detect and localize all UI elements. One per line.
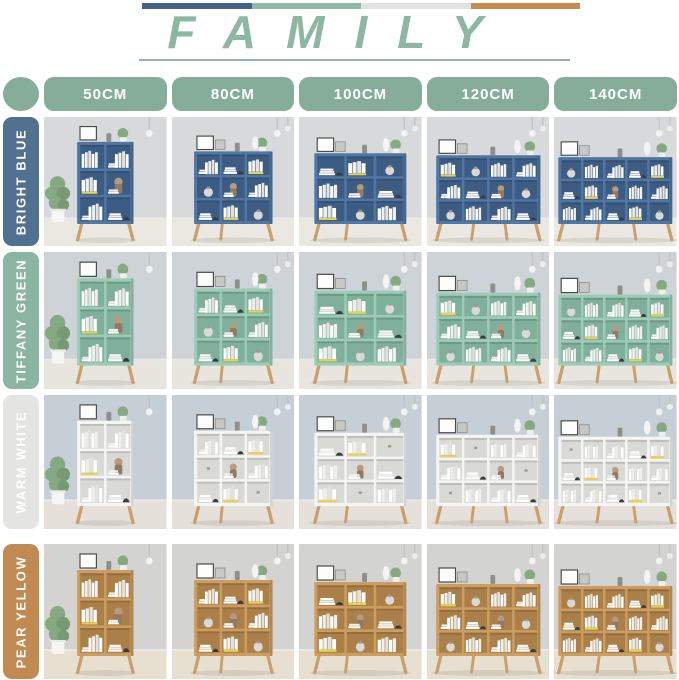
photo-strip-warm-white — [44, 395, 677, 529]
product-photo-pear-yellow-50cm — [44, 544, 167, 679]
size-pill-140cm: 140CM — [554, 77, 677, 111]
photo-strip-tiffany-green — [44, 252, 677, 389]
product-photo-pear-yellow-100cm — [299, 544, 422, 679]
bookshelf-scene — [427, 252, 550, 389]
product-photo-warm-white-80cm — [172, 395, 295, 529]
bookshelf-scene — [554, 117, 677, 246]
bookshelf-scene — [427, 395, 550, 529]
product-photo-pear-yellow-80cm — [172, 544, 295, 679]
bookshelf-scene — [172, 395, 295, 529]
photo-strip-bright-blue — [44, 117, 677, 246]
bookshelf-scene — [44, 395, 167, 529]
product-photo-tiffany-green-80cm — [172, 252, 295, 389]
brand-title: FAMILY — [118, 9, 562, 56]
bookshelf-scene — [172, 117, 295, 246]
product-photo-tiffany-green-50cm — [44, 252, 167, 389]
bookshelf-scene — [554, 544, 677, 679]
color-band-warm-white: WARM WHITE — [3, 395, 677, 529]
bookshelf-scene — [299, 252, 422, 389]
size-pill-120cm: 120CM — [427, 77, 550, 111]
product-photo-pear-yellow-140cm — [554, 544, 677, 679]
bookshelf-scene — [44, 544, 167, 679]
bookshelf-scene — [554, 252, 677, 389]
product-photo-tiffany-green-100cm — [299, 252, 422, 389]
bookshelf-scene — [44, 252, 167, 389]
bookshelf-scene — [299, 544, 422, 679]
color-label-text: PEAR YELLOW — [14, 555, 29, 668]
size-pill-100cm: 100CM — [299, 77, 422, 111]
color-label-bright-blue: BRIGHT BLUE — [3, 117, 39, 246]
bookshelf-scene — [427, 117, 550, 246]
product-photo-pear-yellow-120cm — [427, 544, 550, 679]
color-band-bright-blue: BRIGHT BLUE — [3, 117, 677, 246]
color-label-text: TIFFANY GREEN — [14, 258, 29, 383]
color-label-warm-white: WARM WHITE — [3, 395, 39, 529]
bookshelf-scene — [299, 395, 422, 529]
brand-underline — [139, 59, 570, 61]
size-pill-50cm: 50CM — [44, 77, 167, 111]
product-photo-warm-white-50cm — [44, 395, 167, 529]
color-label-tiffany-green: TIFFANY GREEN — [3, 252, 39, 389]
size-pill-80cm: 80CM — [172, 77, 295, 111]
color-label-text: WARM WHITE — [14, 411, 29, 514]
product-photo-tiffany-green-120cm — [427, 252, 550, 389]
product-photo-bright-blue-120cm — [427, 117, 550, 246]
color-label-pear-yellow: PEAR YELLOW — [3, 544, 39, 679]
product-photo-bright-blue-140cm — [554, 117, 677, 246]
product-photo-tiffany-green-140cm — [554, 252, 677, 389]
product-photo-bright-blue-80cm — [172, 117, 295, 246]
color-band-pear-yellow: PEAR YELLOW — [3, 544, 677, 679]
color-band-tiffany-green: TIFFANY GREEN — [3, 252, 677, 389]
size-header-row: 50CM 80CM 100CM 120CM 140CM — [3, 77, 677, 111]
bookshelf-scene — [44, 117, 167, 246]
color-label-text: BRIGHT BLUE — [14, 128, 29, 234]
bookshelf-scene — [554, 395, 677, 529]
product-photo-bright-blue-50cm — [44, 117, 167, 246]
photo-strip-pear-yellow — [44, 544, 677, 679]
product-photo-bright-blue-100cm — [299, 117, 422, 246]
product-photo-warm-white-140cm — [554, 395, 677, 529]
legend-dot — [3, 77, 39, 111]
bookshelf-scene — [427, 544, 550, 679]
bookshelf-scene — [172, 252, 295, 389]
product-family-sheet: FAMILY 50CM 80CM 100CM 120CM 140CM BRIGH… — [0, 0, 679, 680]
product-photo-warm-white-100cm — [299, 395, 422, 529]
bookshelf-scene — [172, 544, 295, 679]
product-photo-warm-white-120cm — [427, 395, 550, 529]
bookshelf-scene — [299, 117, 422, 246]
